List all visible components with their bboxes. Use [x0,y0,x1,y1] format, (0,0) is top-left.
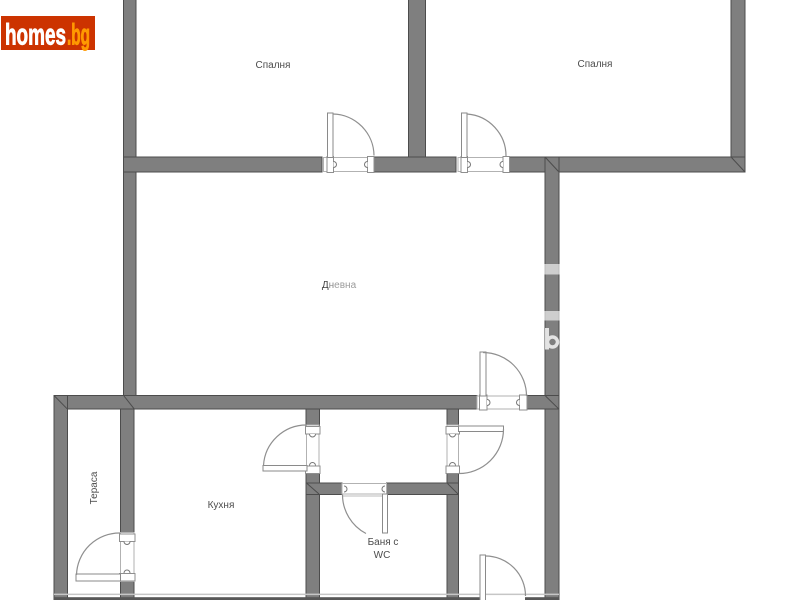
svg-text:Тераса: Тераса [89,471,100,504]
svg-text:.bg: .bg [67,19,90,52]
svg-text:WC: WC [374,550,391,561]
svg-text:Спалня: Спалня [256,60,291,71]
svg-text:Баня с: Баня с [368,537,399,548]
svg-text:Дневна: Дневна [322,280,357,291]
svg-text:Спалня: Спалня [578,59,613,70]
svg-text:Кухня: Кухня [208,500,235,511]
svg-text:homes: homes [5,19,66,52]
